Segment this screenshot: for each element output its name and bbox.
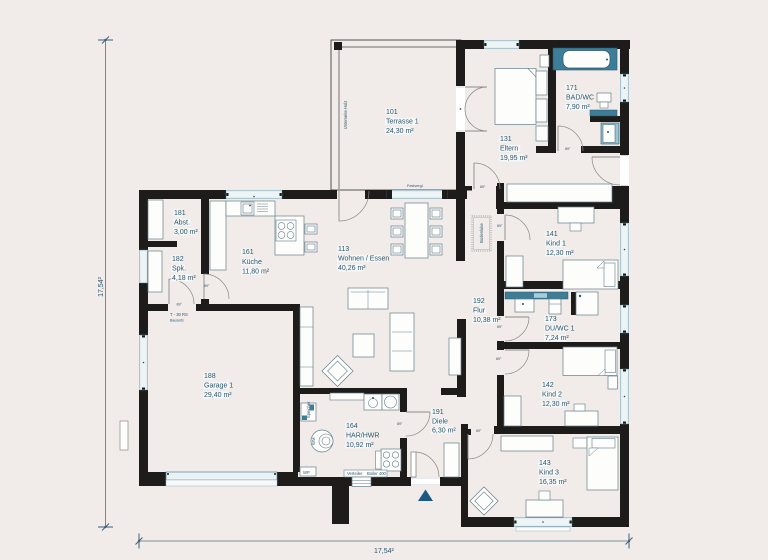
svg-text:T - 30 RS: T - 30 RS [170, 312, 188, 317]
svg-text:3,00 m²: 3,00 m² [174, 229, 198, 236]
svg-text:161: 161 [242, 249, 254, 256]
svg-text:89°: 89° [480, 185, 486, 189]
svg-text:7,90 m²: 7,90 m² [566, 104, 590, 111]
svg-text:Festvergl.: Festvergl. [407, 184, 424, 188]
svg-text:101: 101 [386, 109, 398, 116]
svg-text:Diele: Diele [432, 419, 448, 426]
svg-text:Terrasse 1: Terrasse 1 [386, 119, 419, 126]
svg-text:WM: WM [311, 437, 316, 445]
svg-text:6,30 m²: 6,30 m² [432, 428, 456, 435]
svg-text:141: 141 [546, 231, 558, 238]
svg-text:Flur: Flur [473, 308, 486, 315]
svg-text:17,54²: 17,54² [374, 548, 395, 555]
svg-text:Unterseite Holz: Unterseite Holz [343, 101, 348, 130]
svg-text:WP: WP [303, 470, 310, 475]
svg-text:Wohnen / Essen: Wohnen / Essen [338, 256, 389, 263]
svg-text:10,38 m²: 10,38 m² [473, 317, 501, 324]
svg-text:89°: 89° [177, 303, 183, 307]
svg-text:Garage 1: Garage 1 [204, 383, 233, 390]
svg-text:113: 113 [338, 246, 349, 253]
svg-text:89°: 89° [476, 429, 482, 433]
svg-text:BAD/WC: BAD/WC [566, 95, 594, 102]
svg-text:Speicher: Speicher [306, 401, 311, 418]
svg-text:188: 188 [204, 373, 216, 380]
svg-text:10,92 m²: 10,92 m² [346, 442, 374, 449]
svg-text:191: 191 [432, 409, 444, 416]
svg-text:89°: 89° [397, 422, 403, 426]
svg-text:Eltern: Eltern [500, 146, 518, 153]
svg-text:17,54²: 17,54² [98, 276, 105, 297]
svg-text:4,18 m²: 4,18 m² [172, 275, 196, 282]
svg-text:HAR/HWR: HAR/HWR [346, 433, 379, 440]
svg-text:19,95 m²: 19,95 m² [500, 155, 528, 162]
svg-text:142: 142 [542, 382, 554, 389]
svg-text:Küche: Küche [242, 259, 262, 266]
svg-text:89°: 89° [496, 357, 502, 361]
svg-text:89°: 89° [565, 147, 571, 151]
svg-text:40,26 m²: 40,26 m² [338, 265, 366, 272]
svg-text:7,24 m²: 7,24 m² [545, 335, 569, 342]
svg-text:164: 164 [346, 423, 358, 430]
svg-text:181: 181 [174, 210, 186, 217]
svg-text:11,80 m²: 11,80 m² [242, 269, 270, 276]
svg-text:89°: 89° [204, 284, 210, 288]
svg-text:12,30 m²: 12,30 m² [542, 401, 570, 408]
svg-text:171: 171 [566, 85, 578, 92]
svg-text:Bodenluke: Bodenluke [479, 223, 484, 243]
svg-text:12,30 m²: 12,30 m² [546, 250, 574, 257]
svg-text:89°: 89° [497, 325, 503, 329]
svg-text:173: 173 [545, 316, 557, 323]
svg-text:Bauseits: Bauseits [170, 319, 184, 323]
svg-text:Verteiler: Verteiler [347, 471, 363, 476]
svg-text:Kind 2: Kind 2 [542, 392, 562, 399]
svg-text:29,40 m²: 29,40 m² [204, 392, 232, 399]
svg-text:24,30 m²: 24,30 m² [386, 128, 414, 135]
svg-text:131: 131 [500, 136, 512, 143]
svg-text:Abst.: Abst. [174, 220, 190, 227]
svg-text:Spk.: Spk. [172, 266, 186, 273]
svg-text:Kind 3: Kind 3 [539, 470, 559, 477]
svg-text:DU/WC 1: DU/WC 1 [545, 326, 575, 333]
svg-text:143: 143 [539, 460, 551, 467]
svg-text:Kind 1: Kind 1 [546, 241, 566, 248]
svg-text:182: 182 [172, 256, 184, 263]
svg-text:192: 192 [473, 298, 485, 305]
svg-text:89°: 89° [497, 224, 503, 228]
svg-text:Boiler 400: Boiler 400 [367, 471, 387, 476]
svg-text:16,35 m²: 16,35 m² [539, 479, 567, 486]
